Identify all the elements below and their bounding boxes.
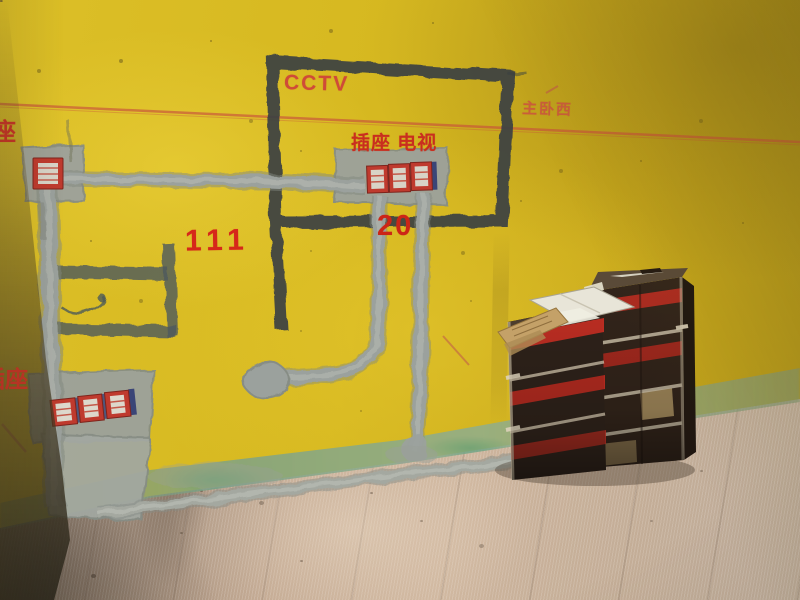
red-tick — [546, 86, 558, 93]
red-mark-diagonal-left — [2, 424, 26, 452]
marking-number-20: 20 — [377, 210, 413, 243]
socket-box-single — [33, 158, 63, 189]
red-mark-diagonal-right — [443, 336, 469, 365]
groove-horizontal-2 — [56, 329, 176, 331]
tile-carton-stack — [495, 268, 696, 486]
groove-vertical-1 — [169, 244, 172, 336]
hook-mark — [62, 297, 104, 314]
marking-socket-lower: 插座 — [0, 360, 28, 394]
groove-horizontal-1 — [57, 272, 168, 274]
mortar-end-blob — [243, 362, 289, 398]
marking-socket-tv: 插座 电视 — [351, 128, 437, 155]
marking-number-111: 111 — [185, 223, 250, 258]
marking-socket-partial: 座 — [0, 112, 16, 147]
scene-graphics — [0, 0, 800, 600]
marking-cctv: CCTV — [284, 71, 350, 97]
dark-grooves — [56, 62, 526, 336]
hook-dot — [98, 294, 106, 302]
socket-box-triple-top — [366, 162, 437, 193]
photo-frame: CCTV 插座 电视 主卧西 111 20 插座 座 — [0, 0, 800, 600]
marking-room-name: 主卧西 — [522, 97, 574, 120]
